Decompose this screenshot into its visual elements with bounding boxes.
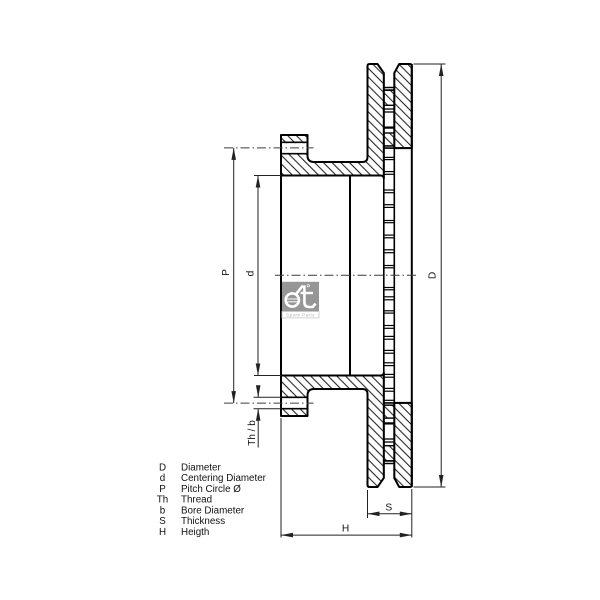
svg-text:Heigth: Heigth <box>181 527 209 538</box>
svg-text:D: D <box>428 272 439 279</box>
svg-text:d: d <box>160 473 165 484</box>
svg-text:S: S <box>159 516 166 527</box>
svg-text:H: H <box>159 527 166 538</box>
svg-text:Thickness: Thickness <box>181 516 225 527</box>
svg-text:D: D <box>159 462 166 473</box>
svg-text:H: H <box>342 524 349 535</box>
svg-text:b: b <box>160 505 166 516</box>
svg-text:P: P <box>221 269 232 276</box>
svg-text:Bore Diameter: Bore Diameter <box>181 505 245 516</box>
svg-text:Centering Diameter: Centering Diameter <box>181 473 267 484</box>
svg-text:S: S <box>385 503 392 514</box>
svg-text:P: P <box>159 484 166 495</box>
svg-text:Thread: Thread <box>181 495 212 506</box>
svg-text:Pitch Circle Ø: Pitch Circle Ø <box>181 484 241 495</box>
svg-text:d: d <box>246 270 257 276</box>
svg-text:Th / b: Th / b <box>247 420 258 446</box>
svg-text:Diameter: Diameter <box>181 462 221 473</box>
svg-text:Th: Th <box>157 495 168 506</box>
svg-text:Spare Parts: Spare Parts <box>286 313 315 318</box>
